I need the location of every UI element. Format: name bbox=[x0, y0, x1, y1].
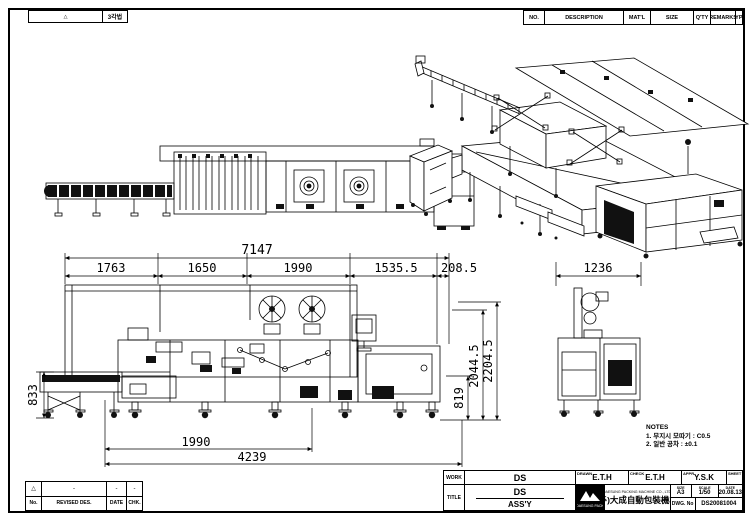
side-elevation-view bbox=[44, 139, 474, 230]
sign-appr-value: Y.S.K bbox=[694, 472, 714, 484]
bom-col-qty: Q'TY bbox=[693, 11, 710, 24]
meta-top-row: SIZE A3 SCALE 1/50 DATE 20.08.13 bbox=[671, 485, 742, 498]
work-label: WORK bbox=[444, 471, 464, 484]
bom-col-no: NO. bbox=[524, 11, 544, 24]
notes-title: NOTES bbox=[646, 424, 746, 433]
revision-header-chk: CHK. bbox=[126, 497, 142, 511]
size-value: A3 bbox=[677, 490, 685, 497]
end-view bbox=[558, 288, 640, 417]
sign-drawn: DRAWN E.T.H bbox=[575, 471, 628, 484]
projection-label: 3각법 bbox=[102, 11, 127, 22]
revision-header-desc: REVISED DES. bbox=[41, 497, 106, 511]
dwg-no-value-cell: DS20081004 bbox=[695, 498, 742, 510]
sign-sheet: SHEET bbox=[726, 471, 742, 484]
size-cell: SIZE A3 bbox=[671, 485, 691, 497]
projection-strip: △ 3각법 bbox=[28, 10, 128, 23]
company-cell: DAESUNG PACKING MACHINE CO., LTD. (주)大成自… bbox=[604, 485, 670, 510]
dim-seg-4: 1535.5 bbox=[374, 261, 417, 275]
mountain-logo-icon: DAESUNG PACK bbox=[577, 486, 603, 510]
front-elevation-view bbox=[40, 285, 440, 418]
scale-value: 1/50 bbox=[699, 490, 711, 497]
sign-drawn-label: DRAWN bbox=[577, 471, 592, 476]
dim-seg-5: 208.5 bbox=[441, 261, 477, 275]
title-label: TITLE bbox=[444, 485, 464, 510]
title-block-row1: WORK DS DRAWN E.T.H CHECK E.T.H APPR. Y.… bbox=[444, 471, 742, 485]
title-block-row2: TITLE DS ASS'Y DAESUNG PACK DAESUNG PACK… bbox=[444, 485, 742, 510]
sign-check: CHECK E.T.H bbox=[628, 471, 681, 484]
dwg-no-label-cell: DWG. No bbox=[671, 498, 695, 510]
work-value: DS bbox=[464, 471, 575, 484]
bom-col-matl: MAT'L bbox=[623, 11, 650, 24]
title-divider bbox=[476, 498, 564, 499]
svg-text:DAESUNG PACK: DAESUNG PACK bbox=[577, 504, 603, 508]
revision-chk-value: - bbox=[126, 482, 142, 496]
notes-block: NOTES 1. 무지시 모따기 : C0.5 2. 일반 공차 : ±0.1 bbox=[646, 424, 746, 450]
dim-right-3: 2204.5 bbox=[481, 339, 495, 382]
bom-col-remarks: REMARKS bbox=[710, 11, 735, 24]
meta-cell: SIZE A3 SCALE 1/50 DATE 20.08.13 DWG. No bbox=[670, 485, 742, 510]
title-block: WORK DS DRAWN E.T.H CHECK E.T.H APPR. Y.… bbox=[443, 470, 743, 511]
note-item-2: 2. 일반 공차 : ±0.1 bbox=[646, 441, 746, 450]
sign-check-label: CHECK bbox=[630, 471, 644, 476]
drawing-canvas: 7147 1763 1650 1990 1535.5 208.5 1236 83… bbox=[0, 0, 751, 520]
revision-mark: △ bbox=[26, 482, 41, 496]
drawing-sheet: 7147 1763 1650 1990 1535.5 208.5 1236 83… bbox=[0, 0, 751, 520]
dim-side-width: 1236 bbox=[584, 261, 613, 275]
dim-bottom-2: 4239 bbox=[238, 450, 267, 464]
dim-right-1: 819 bbox=[452, 387, 466, 409]
title-value: DS bbox=[514, 487, 527, 497]
title-sub: ASS'Y bbox=[508, 500, 532, 509]
revision-row: △ - - - bbox=[26, 482, 142, 496]
note-item-1: 1. 무지시 모따기 : C0.5 bbox=[646, 433, 746, 442]
dwg-no-label: DWG. No bbox=[672, 501, 694, 508]
revision-header-date: DATE bbox=[106, 497, 126, 511]
dim-seg-2: 1650 bbox=[188, 261, 217, 275]
sign-check-value: E.T.H bbox=[645, 472, 665, 484]
sign-drawn-value: E.T.H bbox=[592, 472, 612, 484]
dwg-no-value: DS20081004 bbox=[701, 501, 736, 508]
bom-col-description: DESCRIPTION bbox=[544, 11, 623, 24]
projection-mark: △ bbox=[29, 11, 102, 22]
dim-overall: 7147 bbox=[241, 243, 272, 258]
revision-table: △ - - - No. REVISED DES. DATE CHK. bbox=[25, 481, 143, 511]
meta-bottom-row: DWG. No DS20081004 bbox=[671, 498, 742, 510]
revision-header-no: No. bbox=[26, 497, 41, 511]
scale-cell: SCALE 1/50 bbox=[691, 485, 718, 497]
bom-header: NO. DESCRIPTION MAT'L SIZE Q'TY REMARKS … bbox=[523, 10, 743, 25]
sign-sheet-label: SHEET bbox=[728, 471, 741, 476]
title-area: DS ASS'Y bbox=[464, 485, 575, 510]
revision-date-value: - bbox=[106, 482, 126, 496]
bom-col-type: TYPE bbox=[735, 11, 742, 24]
date-cell: DATE 20.08.13 bbox=[718, 485, 742, 497]
dim-right-2: 2044.5 bbox=[467, 344, 481, 387]
dim-seg-1: 1763 bbox=[97, 261, 126, 275]
isometric-view bbox=[410, 56, 748, 259]
company-logo: DAESUNG PACK bbox=[575, 485, 604, 510]
revision-desc-value: - bbox=[41, 482, 106, 496]
revision-header-row: No. REVISED DES. DATE CHK. bbox=[26, 496, 142, 511]
bom-col-size: SIZE bbox=[650, 11, 693, 24]
company-name-en: DAESUNG PACKING MACHINE CO., LTD. bbox=[604, 489, 670, 494]
company-name-ko: (주)大成自動包裝機械 bbox=[604, 494, 670, 506]
dim-seg-3: 1990 bbox=[284, 261, 313, 275]
date-value: 20.08.13 bbox=[719, 490, 742, 497]
sign-appr-label: APPR. bbox=[683, 471, 695, 476]
dim-bottom-1: 1990 bbox=[182, 435, 211, 449]
dim-infeed-height: 833 bbox=[26, 384, 40, 406]
sign-appr: APPR. Y.S.K bbox=[681, 471, 726, 484]
